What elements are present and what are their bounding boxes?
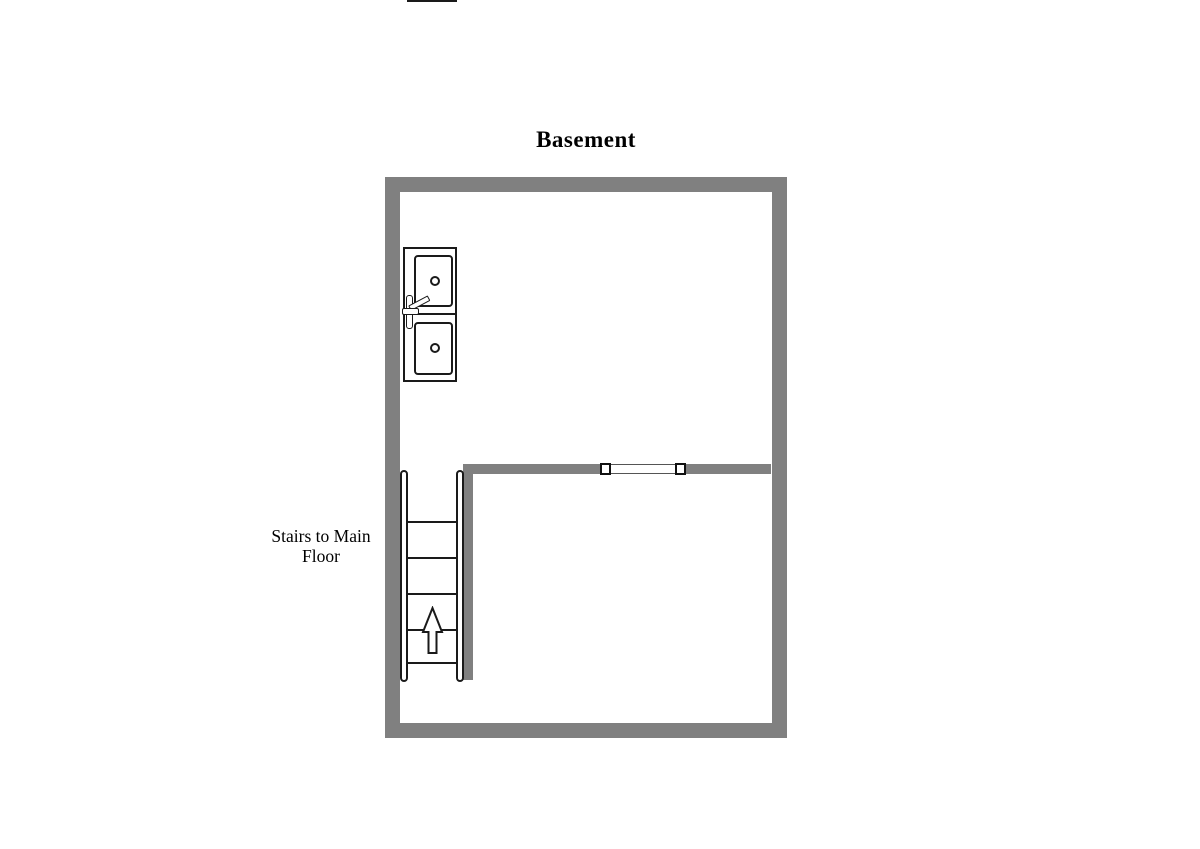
sink-drain-top-icon xyxy=(430,276,440,286)
stair-tread xyxy=(407,0,457,2)
stairs-label-line1: Stairs to Main xyxy=(251,526,391,546)
door-jamb-right xyxy=(675,463,686,475)
stair-rail-left xyxy=(400,470,408,682)
stair-tread xyxy=(407,593,457,595)
interior-wall-left-segment xyxy=(463,464,601,474)
up-arrow-icon xyxy=(420,606,445,656)
sink-drain-bottom-icon xyxy=(430,343,440,353)
floor-plan-canvas: Basement Stairs to Main Floor xyxy=(0,0,1200,849)
interior-wall-right-segment xyxy=(686,464,771,474)
page-title: Basement xyxy=(385,127,787,153)
stairs-label-line2: Floor xyxy=(251,546,391,566)
faucet-crossbar xyxy=(402,308,419,315)
stair-tread xyxy=(407,662,457,664)
stair-tread xyxy=(407,557,457,559)
door-jamb-left xyxy=(600,463,611,475)
door-opening xyxy=(611,464,676,474)
stairs-label: Stairs to Main Floor xyxy=(251,526,391,566)
stair-tread xyxy=(407,521,457,523)
stair-rail-right xyxy=(456,470,464,682)
stairwell-wall xyxy=(463,464,473,680)
